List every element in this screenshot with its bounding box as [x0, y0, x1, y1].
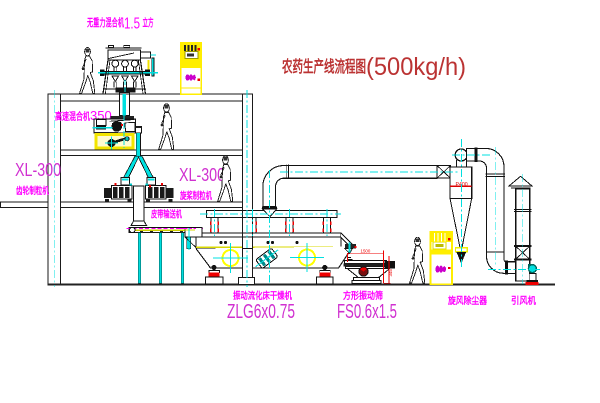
- svg-text:皮带输送机: 皮带输送机: [150, 209, 182, 221]
- svg-text:345: 345: [388, 269, 393, 277]
- svg-text:引风机: 引风机: [511, 295, 536, 307]
- svg-text:无重力混合机: 无重力混合机: [86, 16, 124, 29]
- svg-text:1.5: 1.5: [124, 16, 140, 33]
- svg-text:旋桨制粒机: 旋桨制粒机: [179, 190, 212, 202]
- svg-text:1500: 1500: [361, 249, 371, 254]
- svg-text:旋风除尘器: 旋风除尘器: [447, 295, 487, 307]
- svg-text:FS0.6x1.5: FS0.6x1.5: [337, 300, 397, 323]
- svg-text:齿轮制粒机: 齿轮制粒机: [16, 185, 49, 197]
- svg-text:ZLG6x0.75: ZLG6x0.75: [227, 300, 295, 323]
- svg-text:农药生产线流程图: 农药生产线流程图: [281, 57, 366, 76]
- svg-text:立方: 立方: [143, 16, 154, 29]
- svg-text:(500kg/h): (500kg/h): [366, 53, 466, 81]
- svg-text:XL-300: XL-300: [179, 164, 225, 185]
- svg-text:高速混合机: 高速混合机: [55, 110, 90, 123]
